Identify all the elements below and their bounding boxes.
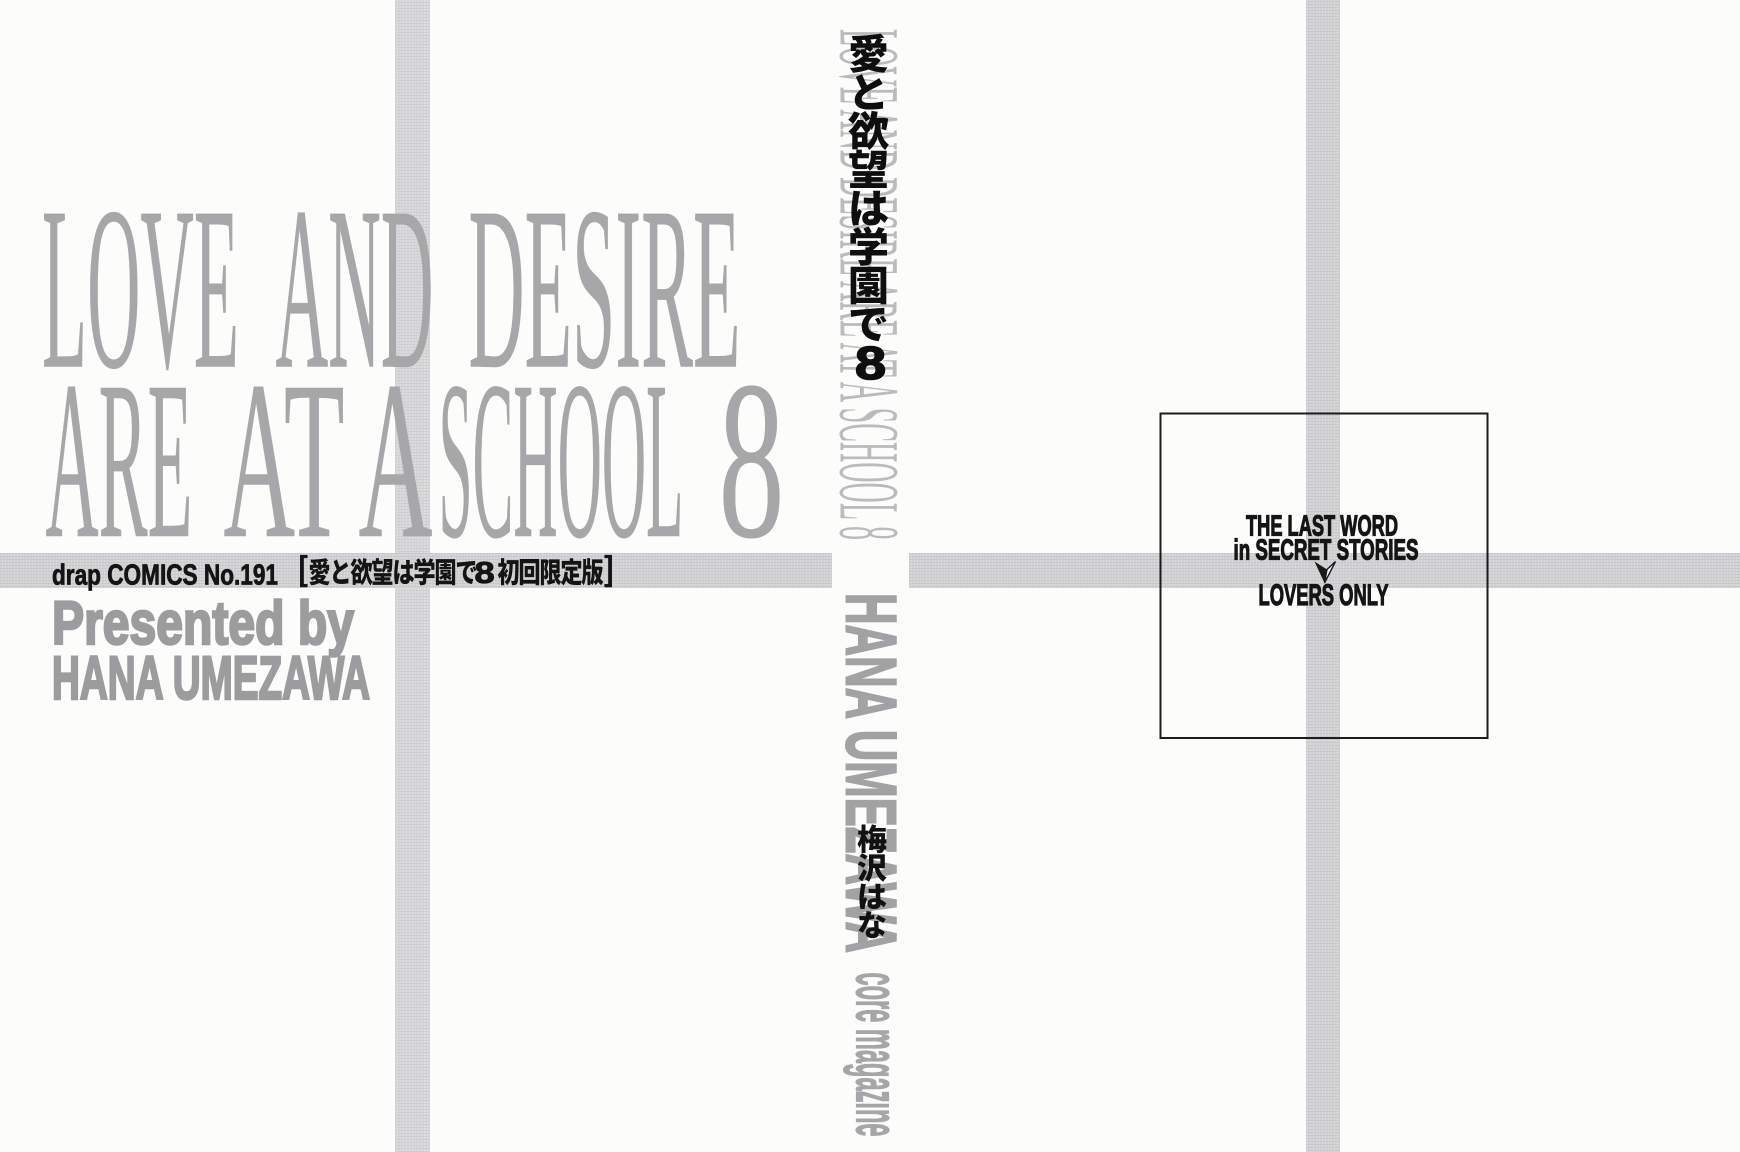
svg-text:drap COMICS No.191: drap COMICS No.191 <box>52 560 278 592</box>
svg-text:ARE: ARE <box>46 335 193 585</box>
svg-text:8: 8 <box>474 556 494 591</box>
svg-text:A: A <box>359 335 433 585</box>
svg-text:AT: AT <box>224 335 345 585</box>
svg-text:LOVERS ONLY: LOVERS ONLY <box>1259 579 1389 612</box>
svg-text:HANA UMEZAWA: HANA UMEZAWA <box>52 644 370 712</box>
svg-text:SCHOOL: SCHOOL <box>439 335 684 585</box>
svg-text:8: 8 <box>855 337 886 389</box>
svg-text:8: 8 <box>719 335 785 585</box>
svg-text:core magazıne: core magazıne <box>844 973 911 1137</box>
svg-text:HANA UMEZAWA: HANA UMEZAWA <box>831 593 910 953</box>
svg-text:in SECRET STORIES: in SECRET STORIES <box>1234 535 1419 567</box>
